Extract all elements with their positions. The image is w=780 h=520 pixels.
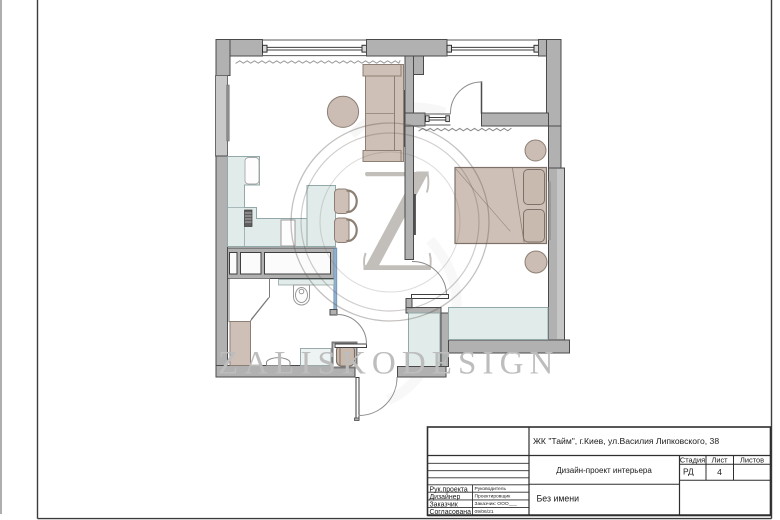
- svg-text:Согласована: Согласована: [430, 509, 472, 516]
- svg-text:ZALISKODESIGN: ZALISKODESIGN: [218, 346, 559, 382]
- svg-text:Проектировщик: Проектировщик: [475, 494, 512, 500]
- svg-text:Дизайнер: Дизайнер: [430, 493, 461, 501]
- svg-text:Без имени: Без имени: [537, 494, 580, 504]
- svg-text:Рук.проекта: Рук.проекта: [430, 486, 468, 493]
- svg-text:ЖК "Тайм", г.Киев, ул.Василия: ЖК "Тайм", г.Киев, ул.Василия Липковског…: [533, 436, 719, 446]
- svg-text:Дизайн-проект интерьера: Дизайн-проект интерьера: [556, 466, 652, 475]
- svg-text:4: 4: [717, 467, 722, 477]
- svg-text:Листов: Листов: [740, 455, 764, 464]
- svg-text:Заказчик: ООО___: Заказчик: ООО___: [475, 501, 518, 507]
- svg-text:Стадия: Стадия: [680, 455, 705, 464]
- svg-text:Заказчик: Заказчик: [430, 501, 459, 508]
- svg-text:Руководитель: Руководитель: [475, 486, 507, 492]
- svg-text:Лист: Лист: [711, 455, 728, 464]
- svg-text:РД: РД: [683, 467, 694, 477]
- svg-text:09/06/21: 09/06/21: [475, 509, 494, 515]
